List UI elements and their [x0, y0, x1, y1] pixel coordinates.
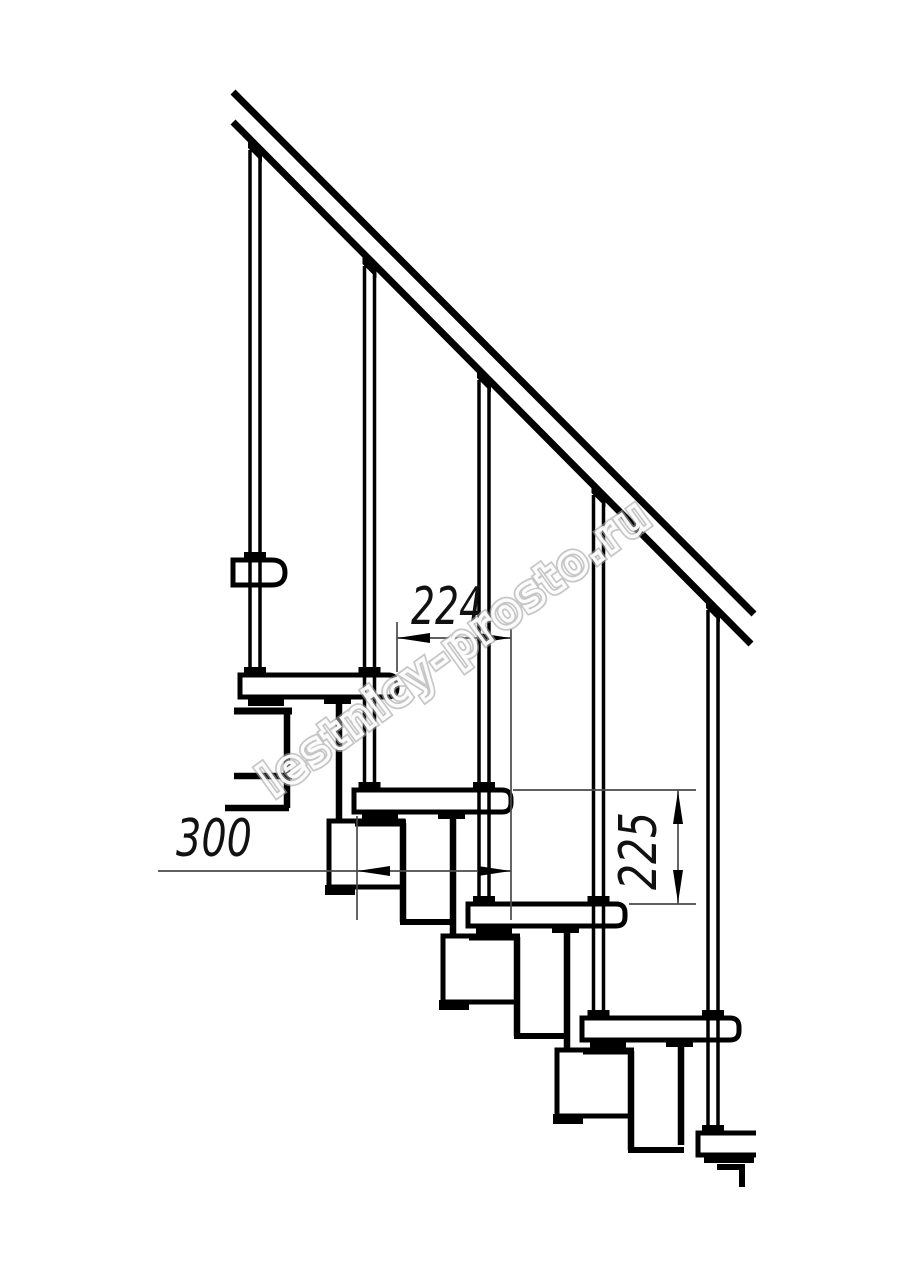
- tread-6-partial: [698, 1133, 756, 1155]
- watermark-text-core: lestnicy-prosto.ru: [248, 487, 660, 807]
- baluster-collar: [588, 1010, 610, 1018]
- handrail: [233, 92, 754, 644]
- dimension-value-225: 225: [609, 812, 669, 890]
- module-box-tab: [553, 1114, 583, 1124]
- handrail-upper-line: [233, 92, 754, 614]
- tread-tab: [438, 811, 465, 819]
- module-box: [557, 1050, 631, 1116]
- handrail-lower-line: [233, 122, 751, 644]
- tread-tab: [726, 1154, 754, 1163]
- tread-tab: [362, 811, 398, 821]
- staircase-technical-drawing: 224 300 225 lestnicy-prosto.ru lestnicy-…: [0, 0, 914, 1280]
- module-box-tab: [325, 885, 355, 895]
- baluster-collar: [359, 782, 381, 790]
- baluster-collar: [702, 1125, 724, 1133]
- arrowhead-up: [673, 791, 683, 824]
- watermark: lestnicy-prosto.ru lestnicy-prosto.ru: [248, 487, 660, 807]
- tread-5: [582, 1018, 739, 1040]
- module-box: [443, 936, 517, 1002]
- tread-tab: [552, 925, 579, 933]
- baluster-collar: [702, 1010, 724, 1018]
- module-box-tab: [439, 1000, 469, 1010]
- baluster-collar: [473, 782, 495, 790]
- tread-tab: [476, 925, 512, 935]
- baluster-collar: [244, 552, 266, 560]
- tread-tab: [248, 696, 284, 706]
- arrowhead-right: [478, 866, 511, 876]
- baluster-1: [244, 141, 266, 675]
- tread-4: [468, 904, 625, 926]
- drawing-canvas: 224 300 225 lestnicy-prosto.ru lestnicy-…: [0, 0, 914, 1280]
- baluster-5: [702, 601, 724, 1133]
- dimension-value-300: 300: [176, 809, 252, 869]
- baluster-collar: [588, 896, 610, 904]
- baluster-collar: [473, 896, 495, 904]
- arrowhead-down: [673, 870, 683, 903]
- tread-tab: [590, 1039, 626, 1049]
- module-box: [329, 821, 403, 887]
- baluster-collar: [244, 667, 266, 675]
- tread-tab: [666, 1039, 693, 1047]
